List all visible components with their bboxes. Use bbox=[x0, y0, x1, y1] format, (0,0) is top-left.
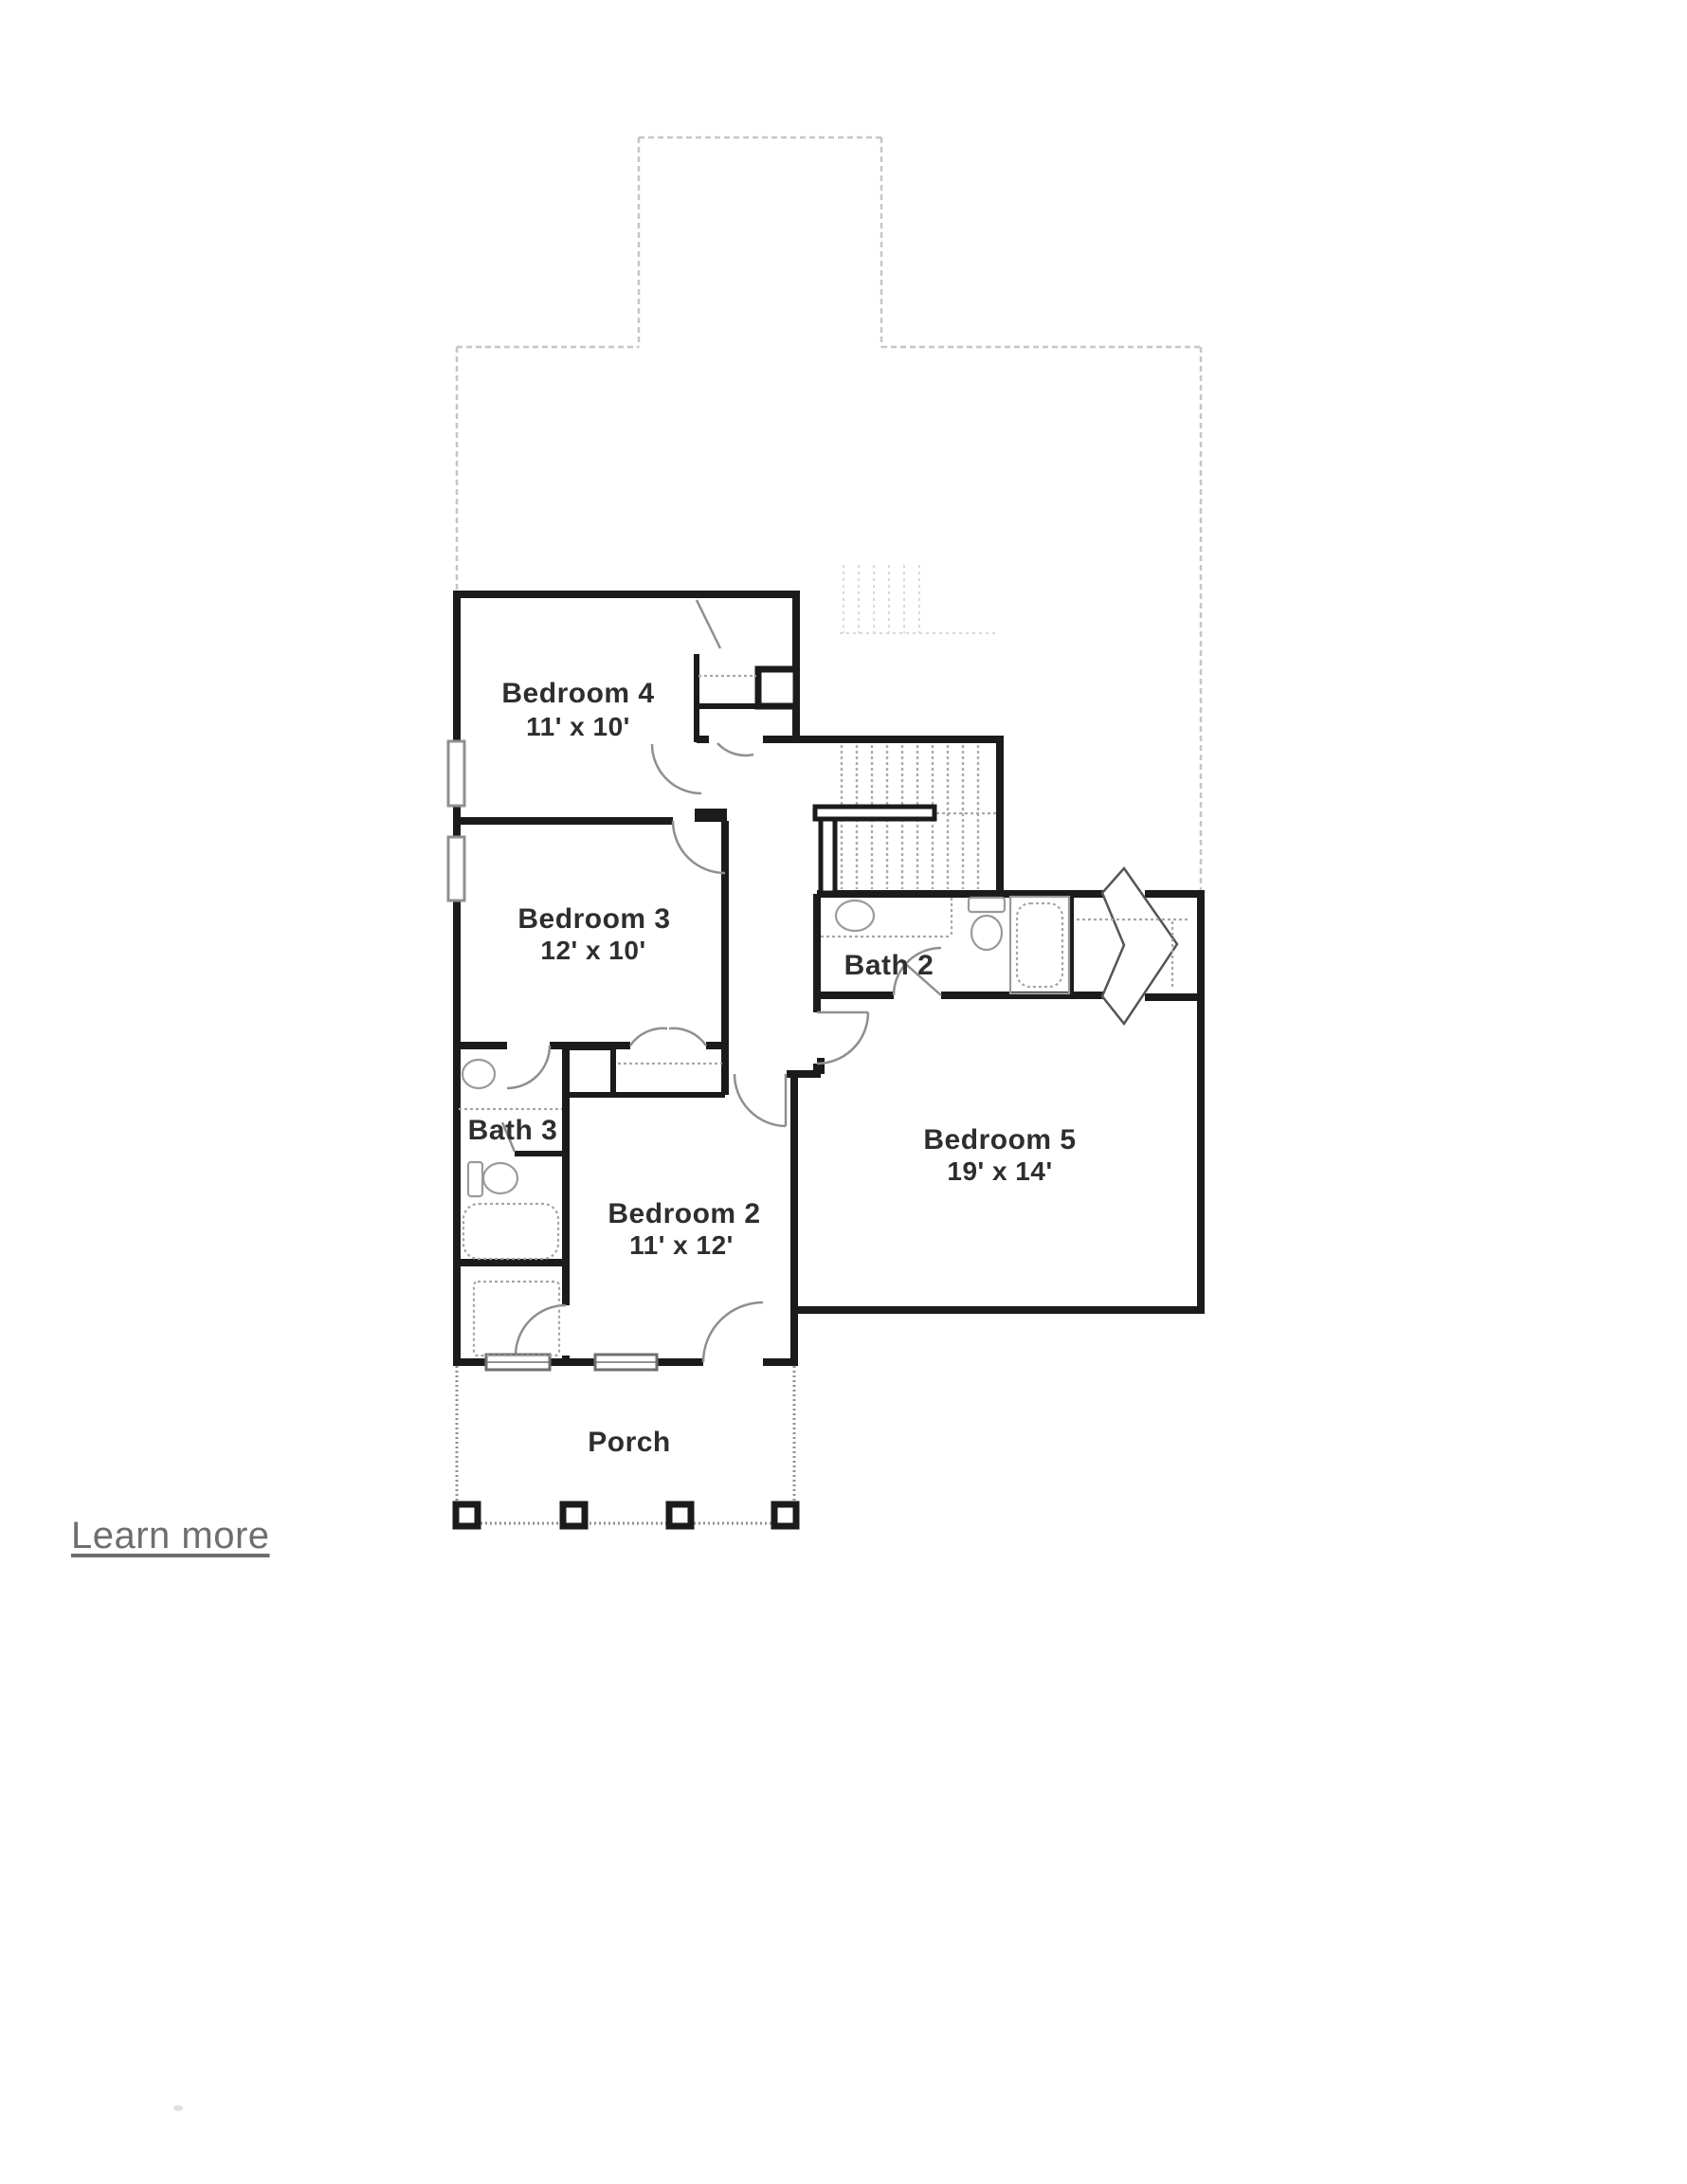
bath2-vanity-counter bbox=[821, 898, 952, 937]
bedroom2-dimensions: 11' x 12' bbox=[629, 1230, 734, 1260]
bath3-toilet-tank bbox=[468, 1162, 482, 1196]
bedroom5-door-arc bbox=[817, 1012, 868, 1064]
bedroom2-label: Bedroom 2 bbox=[608, 1198, 760, 1229]
stairs bbox=[815, 745, 998, 893]
wall-stub bbox=[695, 809, 727, 822]
bedroom4-dimensions: 11' x 10' bbox=[526, 712, 630, 741]
bedroom5-dimensions: 19' x 14' bbox=[947, 1156, 1052, 1186]
bath3-sink bbox=[463, 1060, 495, 1088]
window-west-2 bbox=[448, 837, 464, 901]
bath3-toilet bbox=[483, 1163, 517, 1193]
wall-bedroom3-closet bbox=[613, 1046, 725, 1095]
hall-door-arc bbox=[717, 743, 753, 755]
porch-column-4 bbox=[774, 1504, 796, 1526]
bedroom4-door-arc bbox=[652, 744, 701, 793]
scan-artifact bbox=[173, 2105, 183, 2111]
bedroom3-door-arc bbox=[673, 821, 725, 873]
floor-plan-page: Bedroom 4 11' x 10' Bedroom 3 12' x 10' … bbox=[0, 0, 1687, 2184]
interior-walls bbox=[457, 654, 1201, 1366]
floor-plan: Bedroom 4 11' x 10' Bedroom 3 12' x 10' … bbox=[0, 0, 1687, 2184]
porch-column-3 bbox=[669, 1504, 691, 1526]
bedroom3-dimensions: 12' x 10' bbox=[540, 936, 645, 965]
chase-box bbox=[758, 669, 796, 706]
bedroom3-label: Bedroom 3 bbox=[517, 903, 670, 935]
bedroom4-label: Bedroom 4 bbox=[501, 678, 654, 709]
bath2-sink bbox=[836, 901, 874, 931]
ghost-stairs bbox=[840, 565, 995, 633]
porch-column-2 bbox=[563, 1504, 585, 1526]
bath3-door-arc bbox=[507, 1046, 550, 1088]
closet-box bbox=[566, 1047, 613, 1095]
window-west-1 bbox=[448, 741, 464, 806]
bedroom4-closet-door-leaf bbox=[697, 600, 720, 648]
bath3-label: Bath 3 bbox=[468, 1115, 558, 1146]
porch-door-arc bbox=[703, 1302, 763, 1362]
windows bbox=[448, 741, 657, 1370]
closet-door-arc bbox=[516, 1305, 566, 1356]
bath2-label: Bath 2 bbox=[844, 950, 934, 981]
bath3-fixtures bbox=[459, 1060, 562, 1259]
bath2-bathtub-inner bbox=[1017, 903, 1062, 987]
bedroom2-door-arc bbox=[735, 1074, 786, 1126]
first-floor-outline bbox=[457, 137, 1201, 892]
bath2-toilet-tank bbox=[969, 898, 1005, 912]
porch-label: Porch bbox=[588, 1427, 671, 1458]
stair-rail-side bbox=[821, 819, 835, 893]
bedroom3-bifold-door bbox=[630, 1028, 706, 1046]
bedroom5-label: Bedroom 5 bbox=[923, 1124, 1076, 1156]
porch-column-1 bbox=[456, 1504, 478, 1526]
bath3-bathtub bbox=[463, 1204, 558, 1259]
bath2-toilet bbox=[971, 916, 1002, 950]
learn-more-link[interactable]: Learn more bbox=[71, 1515, 270, 1557]
